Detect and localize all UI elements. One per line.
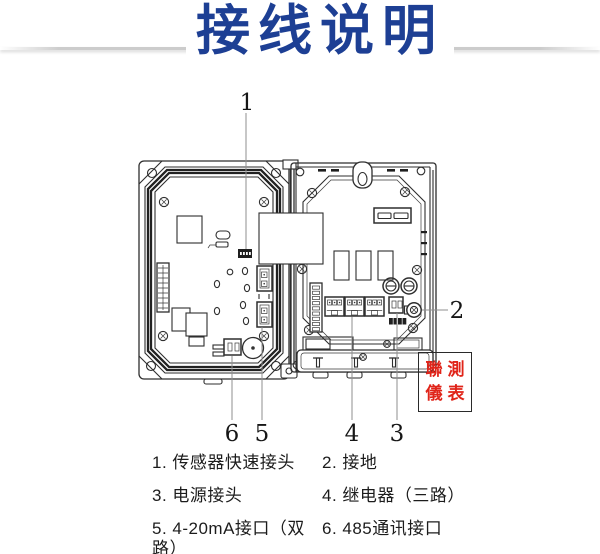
ground-screw [405,303,422,317]
legend-item-2: 2. 接地 [322,453,465,473]
mount-hole [296,168,304,176]
hanging-hook [353,162,372,188]
plate-screw [297,264,306,273]
legend-item-1: 1. 传感器快速接头 [152,453,322,473]
gland-tab [347,372,362,378]
fuse-holder [401,278,417,294]
gland-tab [391,372,406,378]
vendor-watermark: 聯測 儀表 [418,352,472,412]
callout-number-3: 3 [390,421,405,447]
callout-number-2: 2 [450,298,465,324]
pin-header [157,263,169,312]
relay-bank [334,251,393,280]
watermark-line-2: 儀表 [426,382,470,406]
power-connector [389,297,403,313]
analog-output-connector-1 [257,266,272,291]
ribbon-cable-block [259,213,323,264]
plate-screw [307,188,316,197]
component-block [186,313,207,336]
door-pcb [155,177,273,363]
analog-output-connector-2 [257,302,272,327]
door-foot-tab [204,379,222,384]
right-enclosure-panel [291,162,436,378]
cable-gland-strip [297,350,433,372]
callout-number-1: 1 [240,90,255,116]
legend-item-6: 6. 485通讯接口 [322,519,465,554]
display-connector [374,208,411,223]
watermark-line-1: 聯測 [426,358,470,382]
plate-screw [400,187,409,196]
legend-item-4: 4. 继电器（三路） [322,486,465,506]
callout-number-5: 5 [255,421,270,447]
plate-screw [408,323,417,332]
callout-number-6: 6 [225,421,240,447]
left-door-panel [139,161,289,379]
gland-tab [313,372,328,378]
legend-item-3: 3. 电源接头 [152,486,322,506]
dip-switch [310,283,322,332]
relay-terminal-blocks [325,297,384,316]
plate-screw [412,265,421,274]
sensor-quick-connector [238,249,252,258]
legend-item-5: 5. 4-20mA接口（双路） [152,519,322,554]
manual-page: 接线说明 [0,0,600,554]
mount-hole [417,167,425,175]
legend: 1. 传感器快速接头 2. 接地 3. 电源接头 4. 继电器（三路） 5. 4… [152,453,465,554]
rs485-connector [224,339,241,355]
callout-number-4: 4 [345,421,360,447]
